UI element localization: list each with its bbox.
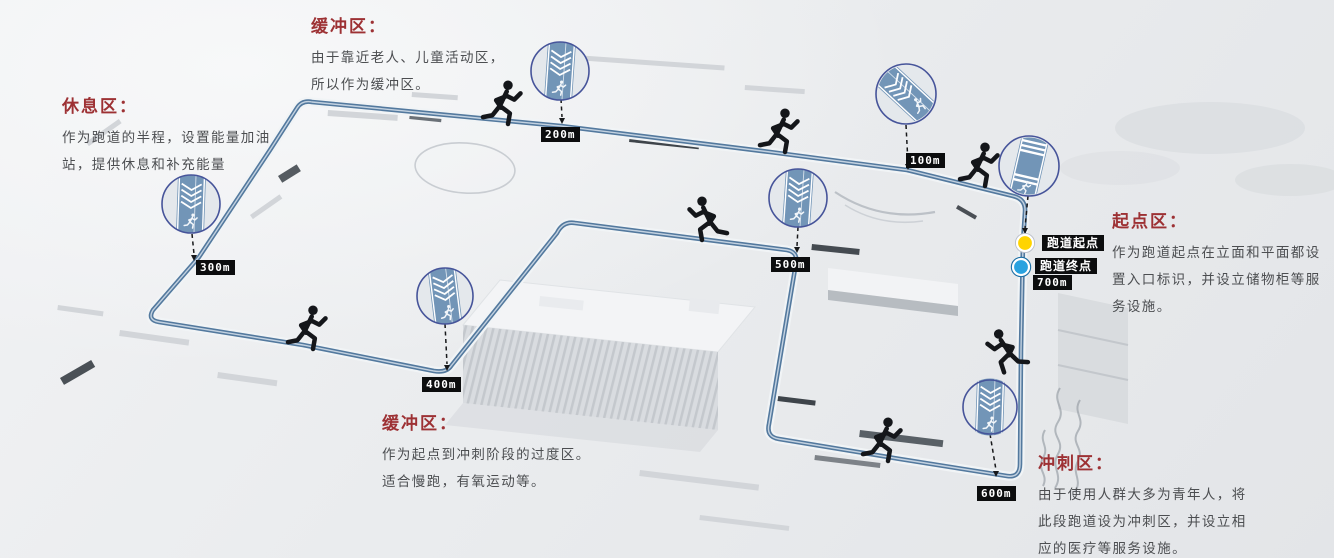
inset-100m [872,61,941,128]
inset-200m [531,36,589,106]
finish-point-icon [1012,258,1031,277]
inset-300m [162,170,220,239]
site-plan [57,55,1334,531]
site-map-svg [0,0,1334,558]
runner-icon [690,197,728,241]
runner-icon [760,109,798,153]
runner-icon [960,143,998,187]
start-point-icon [1016,234,1035,253]
inset-600m [963,373,1017,442]
running-track-site-diagram: 缓冲区： 由于靠近老人、儿童活动区， 所以作为缓冲区。 休息区： 作为跑道的半程… [0,0,1334,558]
inset-400m [417,261,473,332]
inset-500m [769,163,827,233]
